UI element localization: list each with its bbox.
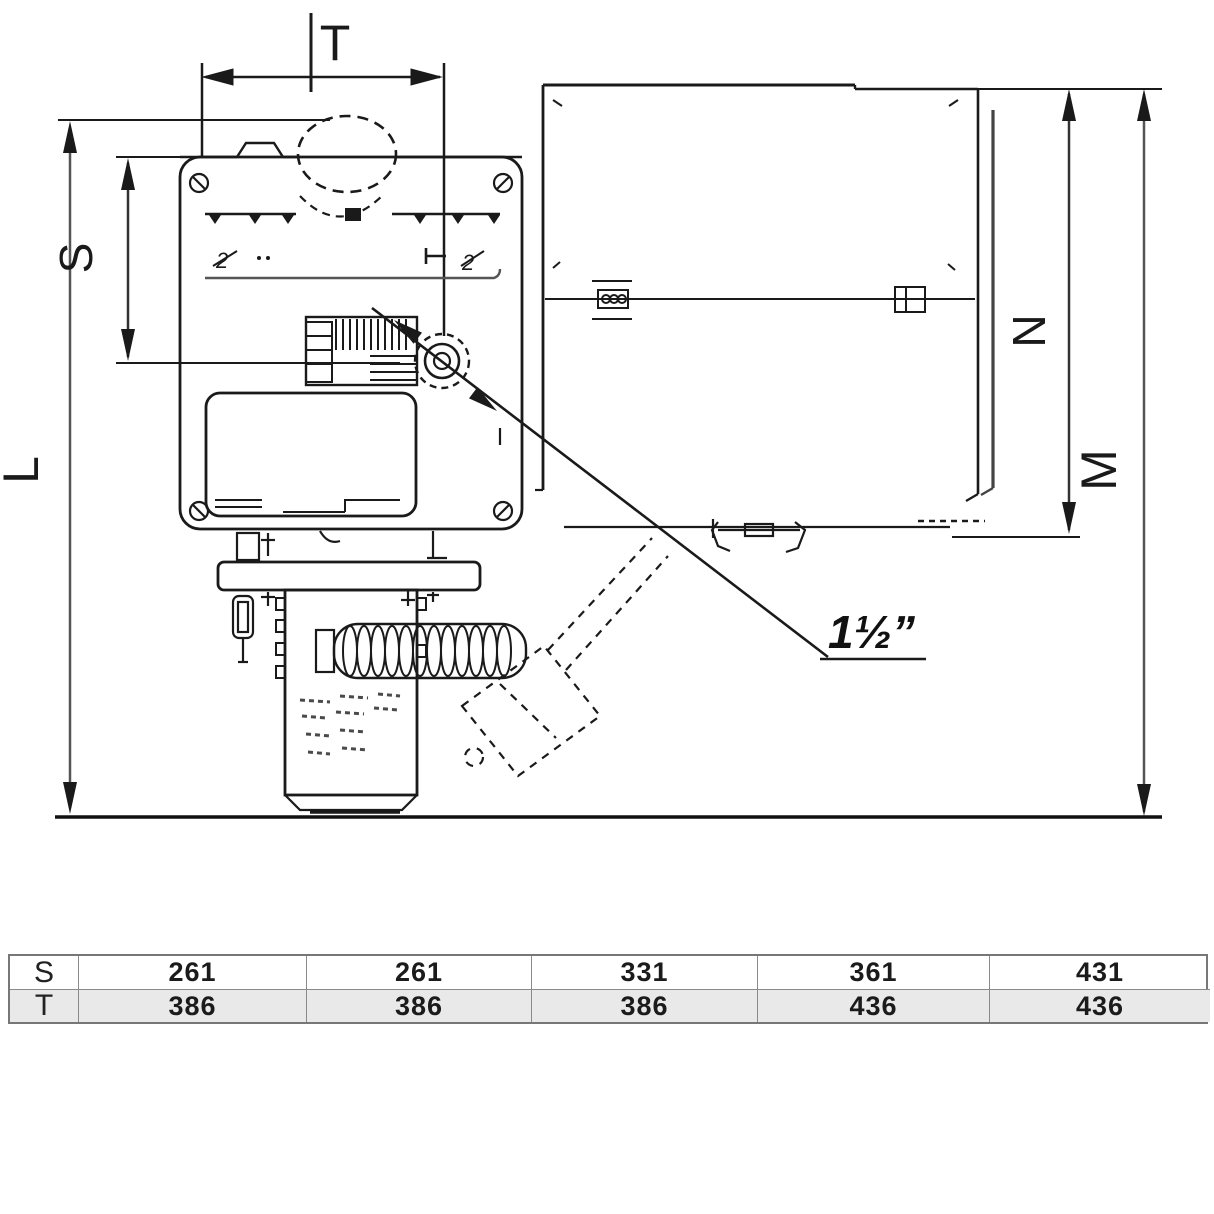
table-cell: 386 [79, 990, 307, 1022]
table-cell: 386 [532, 990, 758, 1022]
dimension-l [58, 120, 330, 814]
leader-line [372, 308, 828, 657]
table-row-header-s: S [10, 956, 79, 990]
flange-bolts [261, 590, 439, 606]
table-cell: 331 [532, 956, 758, 990]
m-arrow-down [1137, 784, 1151, 816]
burner-dimension-drawing: T L S [0, 0, 1214, 945]
technical-drawing-page: T L S [0, 0, 1214, 1214]
panel-glyph-right: 2 [461, 250, 474, 275]
connection-size-label: 1½” [828, 606, 915, 658]
top-cover-bump [237, 143, 283, 157]
t-arrow-left [203, 69, 233, 85]
dimension-label-n: N [1003, 314, 1055, 347]
hose-alternate-position [462, 538, 668, 776]
n-arrow-down [1062, 502, 1076, 534]
control-box [206, 393, 500, 516]
fan-housing-circle [298, 116, 396, 192]
table-cell: 261 [79, 956, 307, 990]
dimension-label-l: L [0, 456, 49, 484]
table-cell: 431 [990, 956, 1210, 990]
dimension-m [1137, 89, 1151, 816]
dimension-label-t: T [320, 15, 351, 71]
m-arrow-up [1137, 89, 1151, 121]
mounting-brackets [237, 531, 447, 560]
mounting-flange [218, 562, 480, 590]
dimension-label-s: S [50, 243, 102, 274]
side-view [535, 85, 993, 552]
inner-corner-ticks [553, 100, 958, 270]
panel-seam-line [205, 269, 500, 278]
table-cell: 436 [990, 990, 1210, 1022]
l-arrow-down [63, 782, 77, 814]
dimension-n [952, 89, 1162, 537]
hose-ribs [343, 626, 511, 676]
dimension-table: S 261 261 331 361 431 T 386 386 386 436 … [8, 954, 1208, 1024]
t-arrow-right [411, 69, 441, 85]
s-arrow-up [121, 158, 135, 190]
dimension-label-m: M [1071, 449, 1127, 491]
photocell [233, 596, 253, 662]
table-cell: 261 [307, 956, 532, 990]
panel-glyph-left: 2 [215, 248, 228, 273]
fan-housing-arc [300, 194, 384, 217]
s-arrow-down [121, 329, 135, 361]
table-row-header-t: T [10, 990, 79, 1022]
front-view [180, 116, 668, 812]
l-arrow-up [63, 121, 77, 153]
table-cell: 436 [758, 990, 990, 1022]
table-cell: 386 [307, 990, 532, 1022]
rail-component-right [895, 287, 940, 312]
bottom-fitting [712, 519, 805, 552]
tube-stamping [300, 694, 400, 754]
table-cell: 361 [758, 956, 990, 990]
n-arrow-up [1062, 89, 1076, 121]
vent-ticks [209, 208, 500, 224]
fuel-hose [316, 624, 526, 678]
